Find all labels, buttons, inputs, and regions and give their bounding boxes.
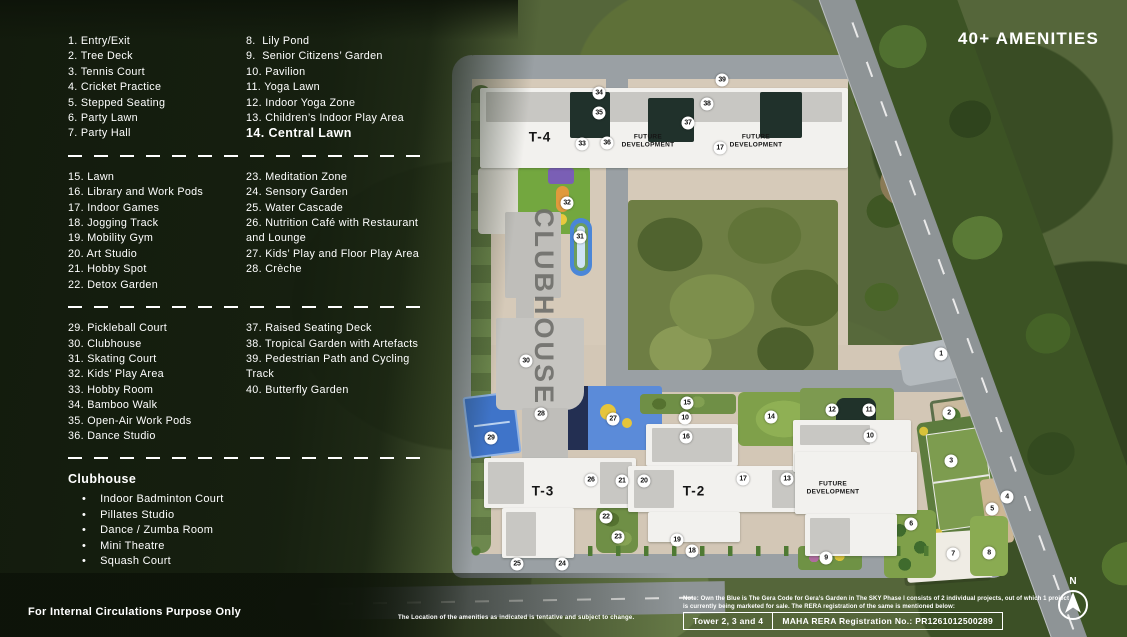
legend-column: 23. Meditation Zone24. Sensory Garden25.… <box>246 170 422 293</box>
map-marker-6: 6 <box>905 518 918 531</box>
map-marker-23: 23 <box>612 531 625 544</box>
legend-item: 7. Party Hall <box>68 126 246 141</box>
map-marker-26: 26 <box>585 474 598 487</box>
legend-item: 24. Sensory Garden <box>246 185 422 200</box>
legend-item: 16. Library and Work Pods <box>68 185 246 200</box>
map-marker-24: 24 <box>556 558 569 571</box>
legend-group-2: 15. Lawn16. Library and Work Pods17. Ind… <box>68 170 422 293</box>
clubhouse-bullet-item: •Squash Court <box>68 554 422 570</box>
legend-item: 13. Children’s Indoor Play Area <box>246 111 422 126</box>
compass: N <box>1052 572 1094 630</box>
legend-item: 34. Bamboo Walk <box>68 398 246 413</box>
legend-item: 37. Raised Seating Deck <box>246 321 422 336</box>
map-marker-15: 15 <box>681 397 694 410</box>
dashed-divider <box>68 306 422 308</box>
building-label-t-4: T-4 <box>529 130 552 145</box>
legend-item: 35. Open-Air Work Pods <box>68 414 246 429</box>
roof <box>652 428 732 462</box>
legend-group-1: 1. Entry/Exit2. Tree Deck3. Tennis Court… <box>68 34 422 142</box>
clubhouse-bullet-label: Squash Court <box>100 554 171 570</box>
internal-road-top <box>452 55 852 79</box>
map-marker-10: 10 <box>864 430 877 443</box>
legend-item: 18. Jogging Track <box>68 216 246 231</box>
legend-item: 12. Indoor Yoga Zone <box>246 96 422 111</box>
rera-tower-cell: Tower 2, 3 and 4 <box>684 613 772 629</box>
compass-north-label: N <box>1069 576 1076 587</box>
map-marker-25: 25 <box>511 558 524 571</box>
bullet-icon: • <box>82 554 86 570</box>
play-equipment <box>548 168 574 184</box>
legend-item: 20. Art Studio <box>68 247 246 262</box>
legend-item: 17. Indoor Games <box>68 201 246 216</box>
map-marker-17: 17 <box>714 142 727 155</box>
play-equipment <box>622 418 632 428</box>
building-label-future-development: FUTURE DEVELOPMENT <box>803 481 863 496</box>
legend-item: 27. Kids’ Play and Floor Play Area <box>246 247 422 262</box>
interior-green-field <box>628 200 838 378</box>
map-marker-7: 7 <box>947 548 960 561</box>
map-marker-1: 1 <box>935 348 948 361</box>
internal-road-left <box>452 55 472 578</box>
clubhouse-bullet-item: •Mini Theatre <box>68 539 422 555</box>
rera-registration-cell: MAHA RERA Registration No.: PR1261012500… <box>772 613 1002 629</box>
bullet-icon: • <box>82 508 86 524</box>
clubhouse-bullet-item: •Indoor Badminton Court <box>68 492 422 508</box>
bullet-icon: • <box>82 523 86 539</box>
roof <box>800 425 870 445</box>
legend-item: 9. Senior Citizens’ Garden <box>246 49 422 64</box>
rera-table: Tower 2, 3 and 4 MAHA RERA Registration … <box>683 612 1003 630</box>
bullet-icon: • <box>82 539 86 555</box>
map-marker-11: 11 <box>863 404 876 417</box>
building-label-future-development: FUTURE DEVELOPMENT <box>726 134 786 149</box>
skating-court-patch <box>570 218 592 276</box>
clubhouse-label: CLUBHOUSE <box>527 208 559 392</box>
map-marker-13: 13 <box>781 473 794 486</box>
map-marker-16: 16 <box>680 431 693 444</box>
clubhouse-bullet-label: Mini Theatre <box>100 539 165 555</box>
legend-item: 25. Water Cascade <box>246 201 422 216</box>
map-marker-18: 18 <box>686 545 699 558</box>
clubhouse-bullet-label: Pillates Studio <box>100 508 174 524</box>
location-disclaimer: The Location of the amenities as indicat… <box>398 615 634 621</box>
legend-item: 8. Lily Pond <box>246 34 422 49</box>
legend-item: 1. Entry/Exit <box>68 34 246 49</box>
legend-column: 37. Raised Seating Deck38. Tropical Gard… <box>246 321 422 444</box>
roof <box>506 512 536 556</box>
map-marker-39: 39 <box>716 74 729 87</box>
map-marker-30: 30 <box>520 355 533 368</box>
map-marker-28: 28 <box>535 408 548 421</box>
legend-item: 10. Pavilion <box>246 65 422 80</box>
legend-item: 40. Butterfly Garden <box>246 383 422 398</box>
map-marker-27: 27 <box>607 413 620 426</box>
map-marker-38: 38 <box>701 98 714 111</box>
map-marker-4: 4 <box>1001 491 1014 504</box>
map-marker-32: 32 <box>561 197 574 210</box>
map-marker-10: 10 <box>679 412 692 425</box>
legend-column: 15. Lawn16. Library and Work Pods17. Ind… <box>68 170 246 293</box>
courtyard <box>760 92 802 138</box>
legend-item: 4. Cricket Practice <box>68 80 246 95</box>
clubhouse-section-title: Clubhouse <box>68 472 422 486</box>
map-marker-5: 5 <box>986 503 999 516</box>
compass-needle-icon <box>1065 592 1081 613</box>
map-marker-22: 22 <box>600 511 613 524</box>
legend-item: 14. Central Lawn <box>246 126 422 141</box>
legend-item: 5. Stepped Seating <box>68 96 246 111</box>
dashed-divider <box>68 457 422 459</box>
legend-item: 23. Meditation Zone <box>246 170 422 185</box>
legend-item: 31. Skating Court <box>68 352 246 367</box>
legend-item: 19. Mobility Gym <box>68 231 246 246</box>
legend-item: 33. Hobby Room <box>68 383 246 398</box>
map-marker-34: 34 <box>593 87 606 100</box>
legend-group-3: 29. Pickleball Court30. Clubhouse31. Ska… <box>68 321 422 444</box>
map-marker-36: 36 <box>601 137 614 150</box>
rera-note: Note: Own the Blue is The Gera Code for … <box>683 595 1075 611</box>
legend-item: 2. Tree Deck <box>68 49 246 64</box>
legend-item: 22. Detox Garden <box>68 278 246 293</box>
map-marker-8: 8 <box>983 547 996 560</box>
legend-item: 38. Tropical Garden with Artefacts <box>246 337 422 352</box>
legend-item: 39. Pedestrian Path and Cycling Track <box>246 352 422 383</box>
map-marker-21: 21 <box>616 475 629 488</box>
legend-column: 1. Entry/Exit2. Tree Deck3. Tennis Court… <box>68 34 246 142</box>
map-marker-31: 31 <box>574 231 587 244</box>
map-marker-12: 12 <box>826 404 839 417</box>
legend-item: 6. Party Lawn <box>68 111 246 126</box>
legend-column: 8. Lily Pond9. Senior Citizens’ Garden10… <box>246 34 422 142</box>
dashed-divider <box>68 155 422 157</box>
map-marker-9: 9 <box>820 552 833 565</box>
clubhouse-bullet-item: •Dance / Zumba Room <box>68 523 422 539</box>
road-dashes <box>305 596 705 605</box>
site-plan-poster: CLUBHOUSE T-4T-3T-2FUTURE DEVELOPMENTFUT… <box>0 0 1127 637</box>
legend-item: 11. Yoga Lawn <box>246 80 422 95</box>
internal-circulation-note: For Internal Circulations Purpose Only <box>28 606 241 618</box>
map-marker-19: 19 <box>671 534 684 547</box>
map-marker-17: 17 <box>737 473 750 486</box>
bullet-icon: • <box>82 492 86 508</box>
clubhouse-bullet-label: Indoor Badminton Court <box>100 492 223 508</box>
legend-item: 15. Lawn <box>68 170 246 185</box>
legend-item: 26. Nutrition Café with Restaurant and L… <box>246 216 422 247</box>
roof <box>810 518 850 554</box>
amenities-count-badge: 40+ AMENITIES <box>958 29 1099 49</box>
map-marker-37: 37 <box>682 117 695 130</box>
clubhouse-bullet-label: Dance / Zumba Room <box>100 523 213 539</box>
map-marker-2: 2 <box>943 407 956 420</box>
legend-item: 32. Kids’ Play Area <box>68 367 246 382</box>
map-marker-33: 33 <box>576 138 589 151</box>
legend-column: 29. Pickleball Court30. Clubhouse31. Ska… <box>68 321 246 444</box>
map-marker-29: 29 <box>485 432 498 445</box>
legend-item: 36. Dance Studio <box>68 429 246 444</box>
building-label-future-development: FUTURE DEVELOPMENT <box>618 134 678 149</box>
map-marker-3: 3 <box>945 455 958 468</box>
amenities-legend: 1. Entry/Exit2. Tree Deck3. Tennis Court… <box>68 34 422 570</box>
legend-item: 28. Crèche <box>246 262 422 277</box>
clubhouse-bullet-item: •Pillates Studio <box>68 508 422 524</box>
legend-item: 29. Pickleball Court <box>68 321 246 336</box>
map-marker-20: 20 <box>638 475 651 488</box>
map-marker-35: 35 <box>593 107 606 120</box>
roof <box>488 462 524 504</box>
tower-t2-wing <box>648 512 740 542</box>
building-label-t-2: T-2 <box>683 484 706 499</box>
map-marker-14: 14 <box>765 411 778 424</box>
legend-item: 30. Clubhouse <box>68 337 246 352</box>
legend-item: 3. Tennis Court <box>68 65 246 80</box>
building-label-t-3: T-3 <box>532 484 555 499</box>
legend-item: 21. Hobby Spot <box>68 262 246 277</box>
